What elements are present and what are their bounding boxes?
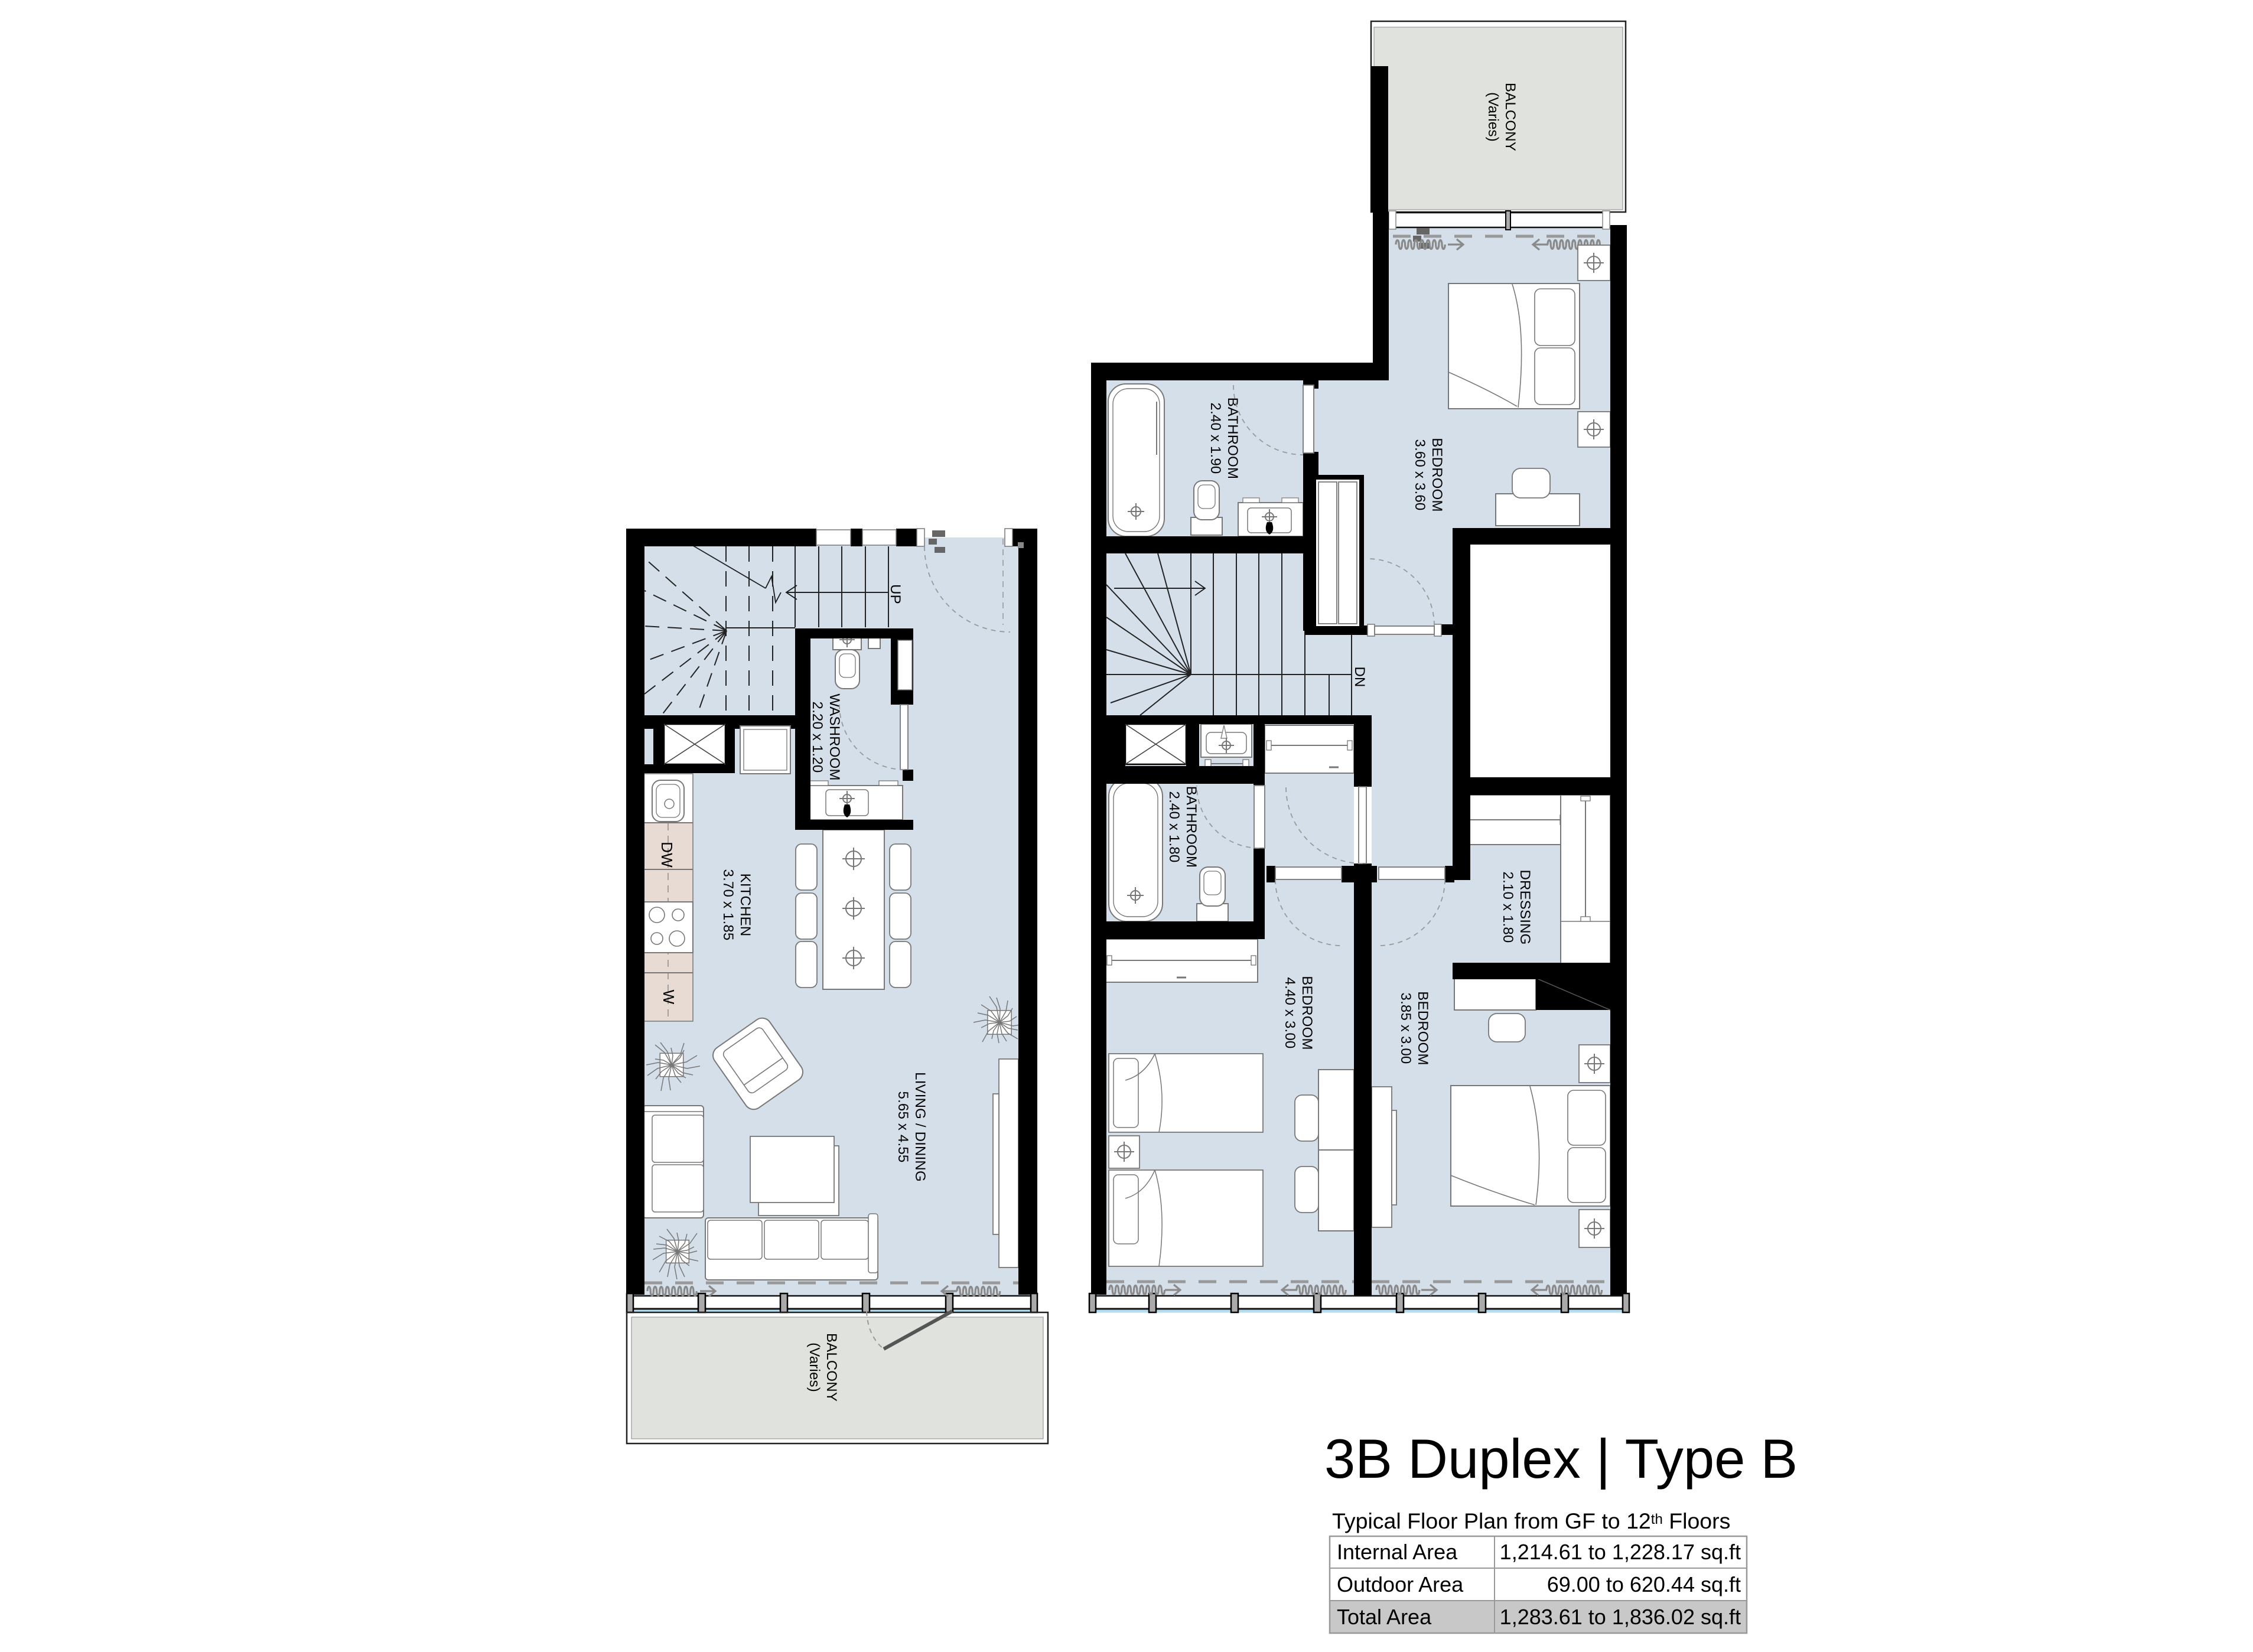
svg-text:Total Area: Total Area [1337, 1605, 1432, 1629]
svg-text:DRESSING: DRESSING [1517, 870, 1533, 945]
svg-text:1,283.61 to 1,836.02 sq.ft: 1,283.61 to 1,836.02 sq.ft [1500, 1605, 1741, 1629]
svg-text:3B Duplex | Type B: 3B Duplex | Type B [1324, 1428, 1798, 1490]
svg-text:4.40 x 3.00: 4.40 x 3.00 [1282, 977, 1298, 1049]
svg-text:(Varies): (Varies) [806, 1343, 822, 1392]
svg-text:Typical Floor Plan from GF to: Typical Floor Plan from GF to 12th Floor… [1332, 1508, 1730, 1533]
svg-text:LIVING / DINING: LIVING / DINING [912, 1072, 928, 1182]
svg-text:W: W [660, 990, 678, 1005]
svg-text:5.65 x 4.55: 5.65 x 4.55 [895, 1091, 911, 1163]
svg-text:BEDROOM: BEDROOM [1299, 976, 1315, 1050]
svg-text:BALCONY: BALCONY [823, 1333, 839, 1402]
svg-text:BATHROOM: BATHROOM [1225, 397, 1241, 480]
svg-text:BEDROOM: BEDROOM [1429, 438, 1445, 511]
svg-text:(Varies): (Varies) [1485, 92, 1501, 142]
svg-text:Internal Area: Internal Area [1337, 1540, 1458, 1564]
svg-text:3.85 x 3.00: 3.85 x 3.00 [1398, 993, 1414, 1064]
svg-text:2.20 x 1.20: 2.20 x 1.20 [809, 702, 825, 773]
svg-text:BEDROOM: BEDROOM [1415, 991, 1431, 1065]
svg-text:2.40 x 1.90: 2.40 x 1.90 [1207, 403, 1223, 474]
svg-text:DN: DN [1352, 666, 1368, 687]
svg-text:2.10 x 1.80: 2.10 x 1.80 [1500, 872, 1516, 943]
svg-text:3.60 x 3.60: 3.60 x 3.60 [1412, 439, 1428, 511]
svg-text:69.00 to 620.44 sq.ft: 69.00 to 620.44 sq.ft [1547, 1572, 1741, 1596]
svg-text:KITCHEN: KITCHEN [737, 874, 753, 937]
svg-text:1,214.61 to 1,228.17 sq.ft: 1,214.61 to 1,228.17 sq.ft [1500, 1540, 1741, 1564]
svg-text:BATHROOM: BATHROOM [1183, 786, 1199, 868]
svg-text:UP: UP [887, 584, 903, 604]
svg-text:3.70 x 1.85: 3.70 x 1.85 [720, 869, 736, 941]
svg-text:BALCONY: BALCONY [1502, 83, 1518, 151]
svg-text:Outdoor Area: Outdoor Area [1337, 1572, 1464, 1596]
svg-text:2.40 x 1.80: 2.40 x 1.80 [1166, 791, 1182, 863]
svg-text:DW: DW [658, 842, 676, 868]
